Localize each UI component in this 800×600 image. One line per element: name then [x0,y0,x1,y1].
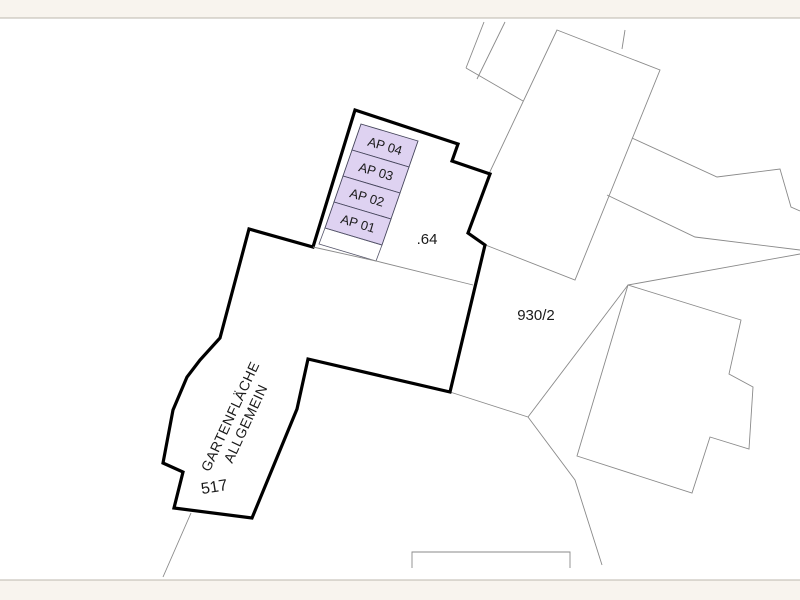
bottom-frame-bar [0,581,800,600]
site-plan-image: AP 04 AP 03 AP 02 AP 01 .64 930/2 517 GA… [0,0,800,600]
building-number-label: .64 [417,231,438,248]
top-frame-bar [0,0,800,18]
neighbor-parcel-label: 930/2 [517,307,555,324]
cadastral-map-canvas: AP 04 AP 03 AP 02 AP 01 .64 930/2 517 GA… [0,0,800,600]
